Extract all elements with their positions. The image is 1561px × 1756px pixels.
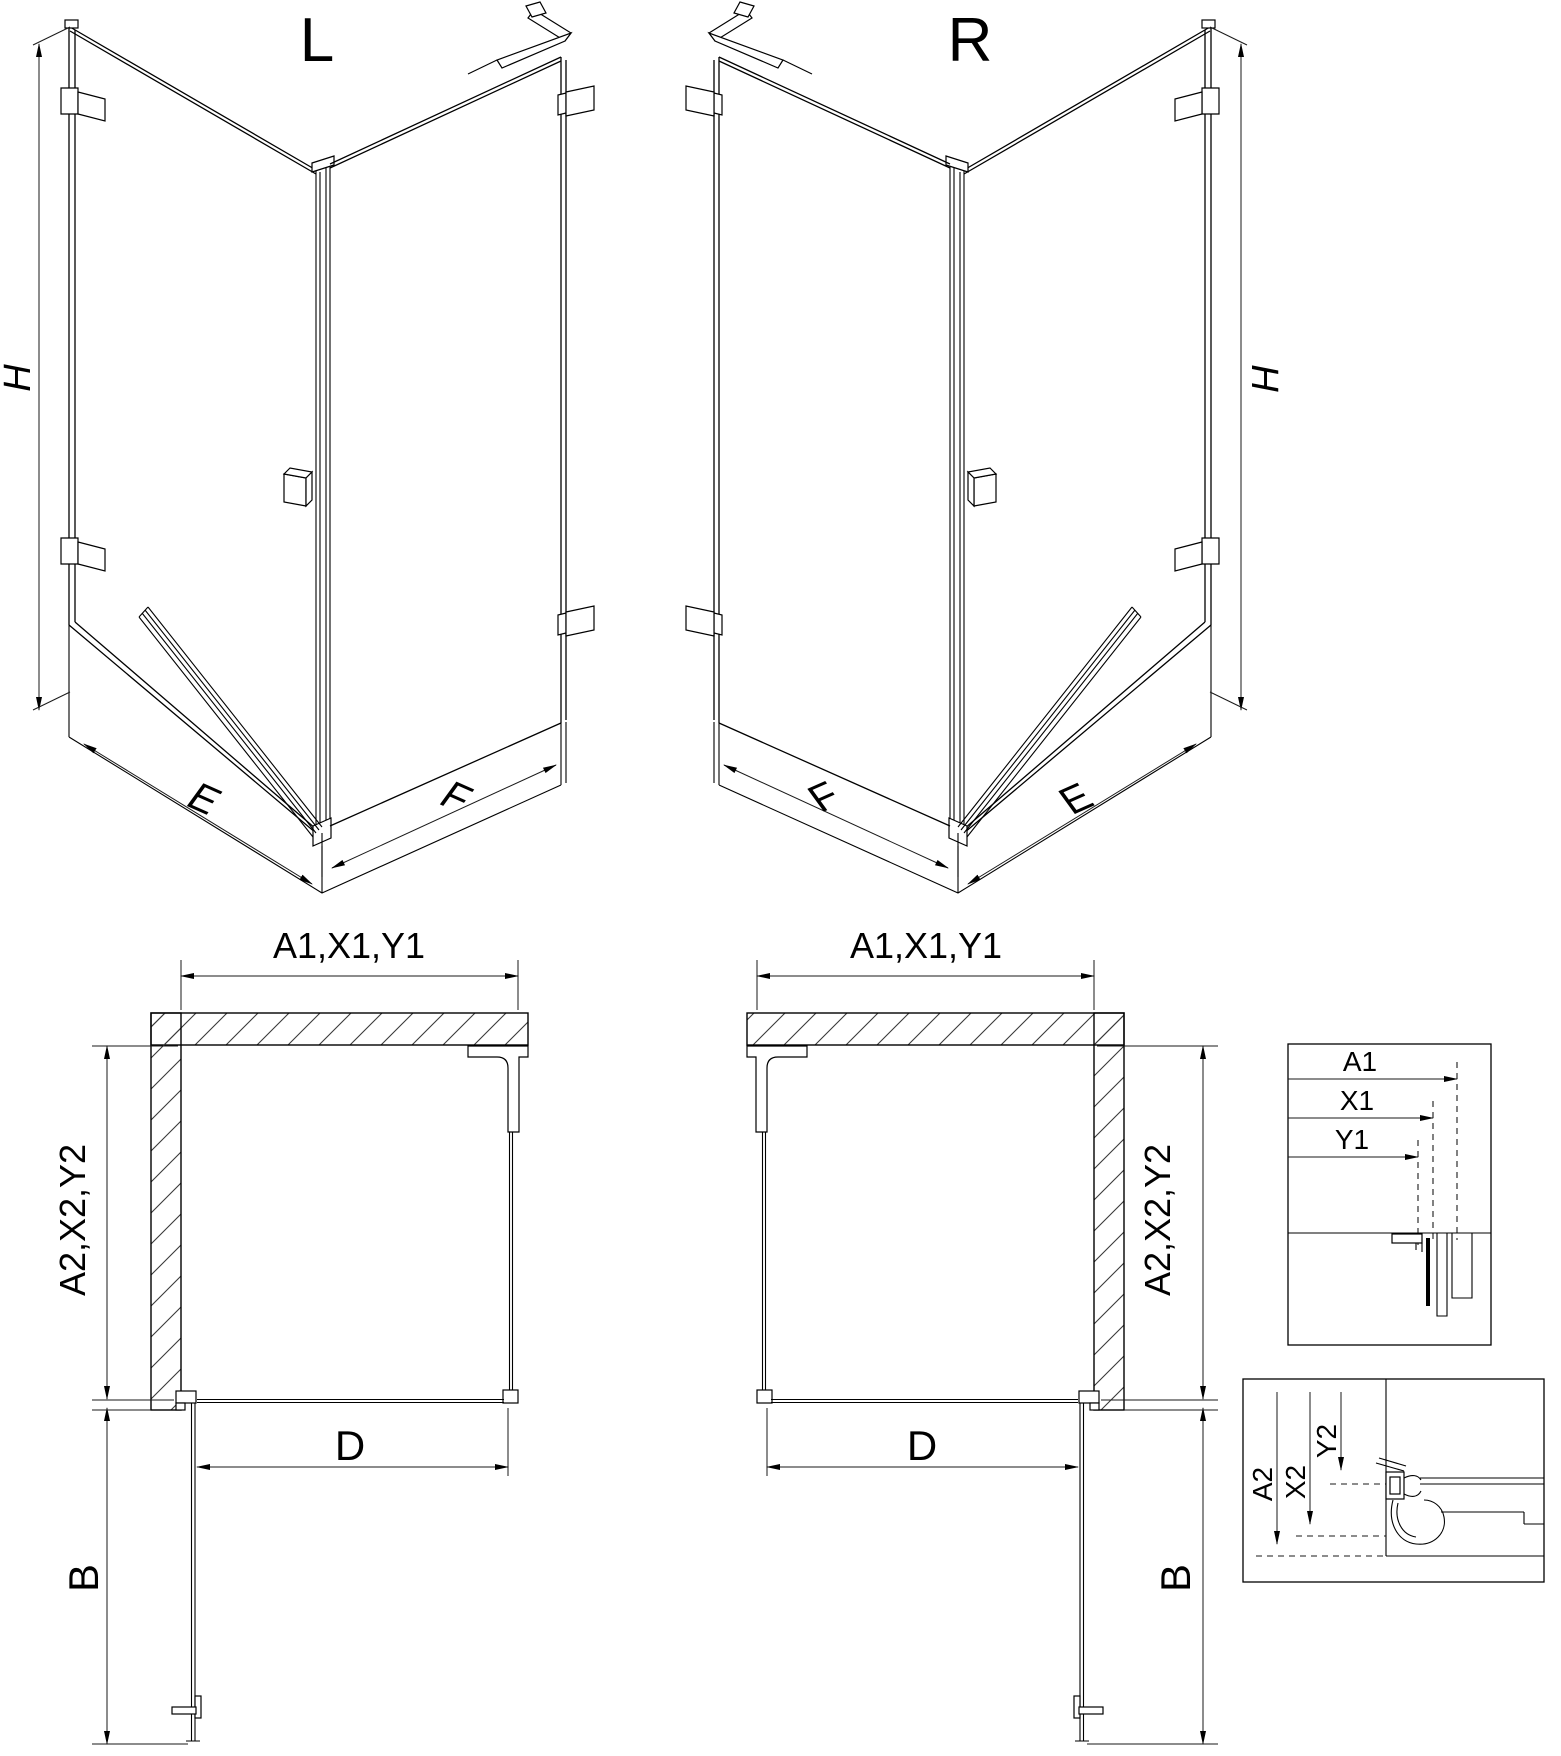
iso-left-height-label: H xyxy=(0,364,39,392)
plan-right-b-label: B xyxy=(1152,1564,1199,1592)
drawing-page: L H E F R H F E A1,X1,Y1 A2,X2,Y2 D B A1… xyxy=(0,0,1561,1756)
plan-left-b-label: B xyxy=(60,1564,107,1592)
iso-left-e-label: E xyxy=(178,774,230,822)
wall-top-hatched xyxy=(151,1013,528,1045)
plan-view-right: A1,X1,Y1 A2,X2,Y2 D B xyxy=(747,925,1218,1744)
plan-left-depth-dim-label: A2,X2,Y2 xyxy=(52,1144,93,1296)
iso-right-e-label: E xyxy=(1050,774,1102,822)
detail-top-x1-label: X1 xyxy=(1340,1085,1374,1116)
detail-bottom-x2-label: X2 xyxy=(1280,1465,1311,1499)
wall-side-hatched xyxy=(151,1013,181,1410)
detail-top-a1-label: A1 xyxy=(1343,1046,1377,1077)
detail-bottom-y2-label: Y2 xyxy=(1311,1424,1342,1458)
plan-right-depth-dim-label: A2,X2,Y2 xyxy=(1137,1144,1178,1296)
iso-view-right: R H F E xyxy=(686,2,1285,893)
detail-top-y1-label: Y1 xyxy=(1335,1124,1369,1155)
iso-right-height-label: H xyxy=(1243,364,1285,392)
iso-right-title: R xyxy=(948,6,993,75)
detail-top-offsets: A1 X1 Y1 xyxy=(1288,1044,1491,1345)
iso-right-f-label: F xyxy=(799,773,849,821)
plan-left-d-label: D xyxy=(335,1422,365,1469)
iso-left-title: L xyxy=(300,6,334,75)
plan-view-left: A1,X1,Y1 A2,X2,Y2 D B xyxy=(52,925,528,1744)
detail-bottom-a2-label: A2 xyxy=(1247,1467,1278,1501)
plan-right-d-label: D xyxy=(907,1422,937,1469)
shower-enclosure-technical-drawing: L H E F R H F E A1,X1,Y1 A2,X2,Y2 D B A1… xyxy=(0,0,1561,1756)
iso-view-left: L H E F xyxy=(0,2,594,893)
plan-left-top-dim-label: A1,X1,Y1 xyxy=(273,925,425,966)
plan-right-top-dim-label: A1,X1,Y1 xyxy=(850,925,1002,966)
iso-left-f-label: F xyxy=(431,773,481,821)
detail-bottom-offsets: A2 X2 Y2 xyxy=(1243,1379,1544,1582)
wall-top-hatched xyxy=(747,1013,1124,1045)
wall-side-hatched xyxy=(1094,1013,1124,1410)
